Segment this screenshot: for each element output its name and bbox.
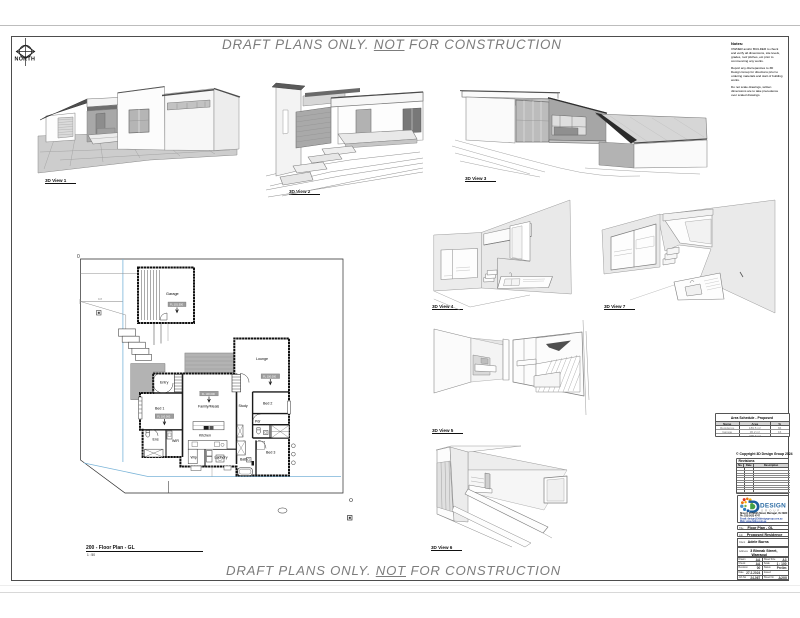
svg-text:Lounge: Lounge <box>256 357 268 361</box>
svg-text:Ens: Ens <box>153 437 159 441</box>
svg-text:Family/Meals: Family/Meals <box>198 405 219 409</box>
svg-text:Bed 3: Bed 3 <box>266 451 275 455</box>
svg-text:WIR: WIR <box>172 439 179 443</box>
svg-text:Entry: Entry <box>160 381 169 385</box>
svg-text:Garage: Garage <box>166 292 179 296</box>
svg-text:Pdr: Pdr <box>255 420 261 424</box>
svg-text:9.8: 9.8 <box>98 297 102 301</box>
svg-text:FL 100.000: FL 100.000 <box>157 415 171 419</box>
svg-text:FL 100.000: FL 100.000 <box>263 375 277 379</box>
svg-text:Wip: Wip <box>191 456 197 460</box>
svg-text:Bed 2: Bed 2 <box>263 402 272 406</box>
svg-text:Laundry: Laundry <box>215 456 228 460</box>
svg-text:Bed 1: Bed 1 <box>155 407 164 411</box>
svg-text:Study: Study <box>239 404 248 408</box>
svg-text:Kitchen: Kitchen <box>199 434 211 438</box>
svg-text:0: 0 <box>77 254 80 260</box>
svg-text:FL 101.500: FL 101.500 <box>170 303 184 307</box>
svg-text:FL 100.000: FL 100.000 <box>202 392 216 396</box>
svg-text:Bath: Bath <box>240 458 247 462</box>
